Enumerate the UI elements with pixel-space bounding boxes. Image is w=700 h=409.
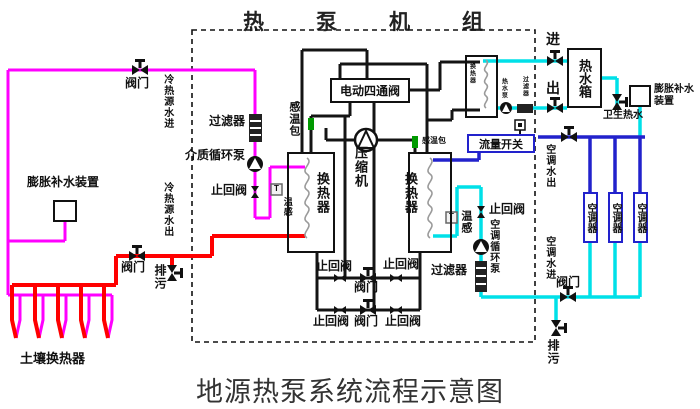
check-valve-midbot-right [390, 306, 402, 314]
drain-valve-ac [551, 320, 567, 336]
temp-bulb-right [412, 136, 418, 148]
filter-medium-loop [249, 114, 262, 142]
check-valve-ac-loop [477, 206, 485, 218]
check-valve-medium-loop [251, 186, 259, 198]
valve-tank-in [547, 50, 563, 66]
temp-bulb-left [308, 118, 314, 130]
temp-sensor-box-left [271, 184, 282, 195]
ac-circulation-pump [473, 239, 489, 255]
hotwater-pump [500, 102, 512, 114]
valve-ac-return [560, 286, 576, 302]
check-valve-midtop-left [334, 274, 346, 282]
valve-sanitary [612, 94, 628, 110]
valve-source-out [129, 245, 145, 261]
check-valve-midbot-left [334, 306, 346, 314]
valve-ac-supply [561, 126, 577, 142]
valve-tank-out [547, 97, 563, 113]
compressor-symbol [355, 129, 377, 151]
temp-sensor-box-right [446, 212, 457, 223]
flow-switch-sensor [515, 120, 525, 134]
check-valve-midtop-right [390, 274, 402, 282]
unit-dashed-border [192, 30, 535, 342]
medium-circulation-pump [247, 156, 263, 172]
valve-source-in [132, 59, 148, 75]
drain-valve-ground [167, 265, 183, 281]
diagram-stage: 电动四通阀 流量开关 热水箱 空调器 空调器 空调器 阀门冷热源水进冷热源水出过… [0, 0, 700, 409]
filter-hotwater-loop [517, 104, 533, 113]
piping-layer [0, 0, 700, 409]
filter-ac-loop [475, 261, 487, 292]
